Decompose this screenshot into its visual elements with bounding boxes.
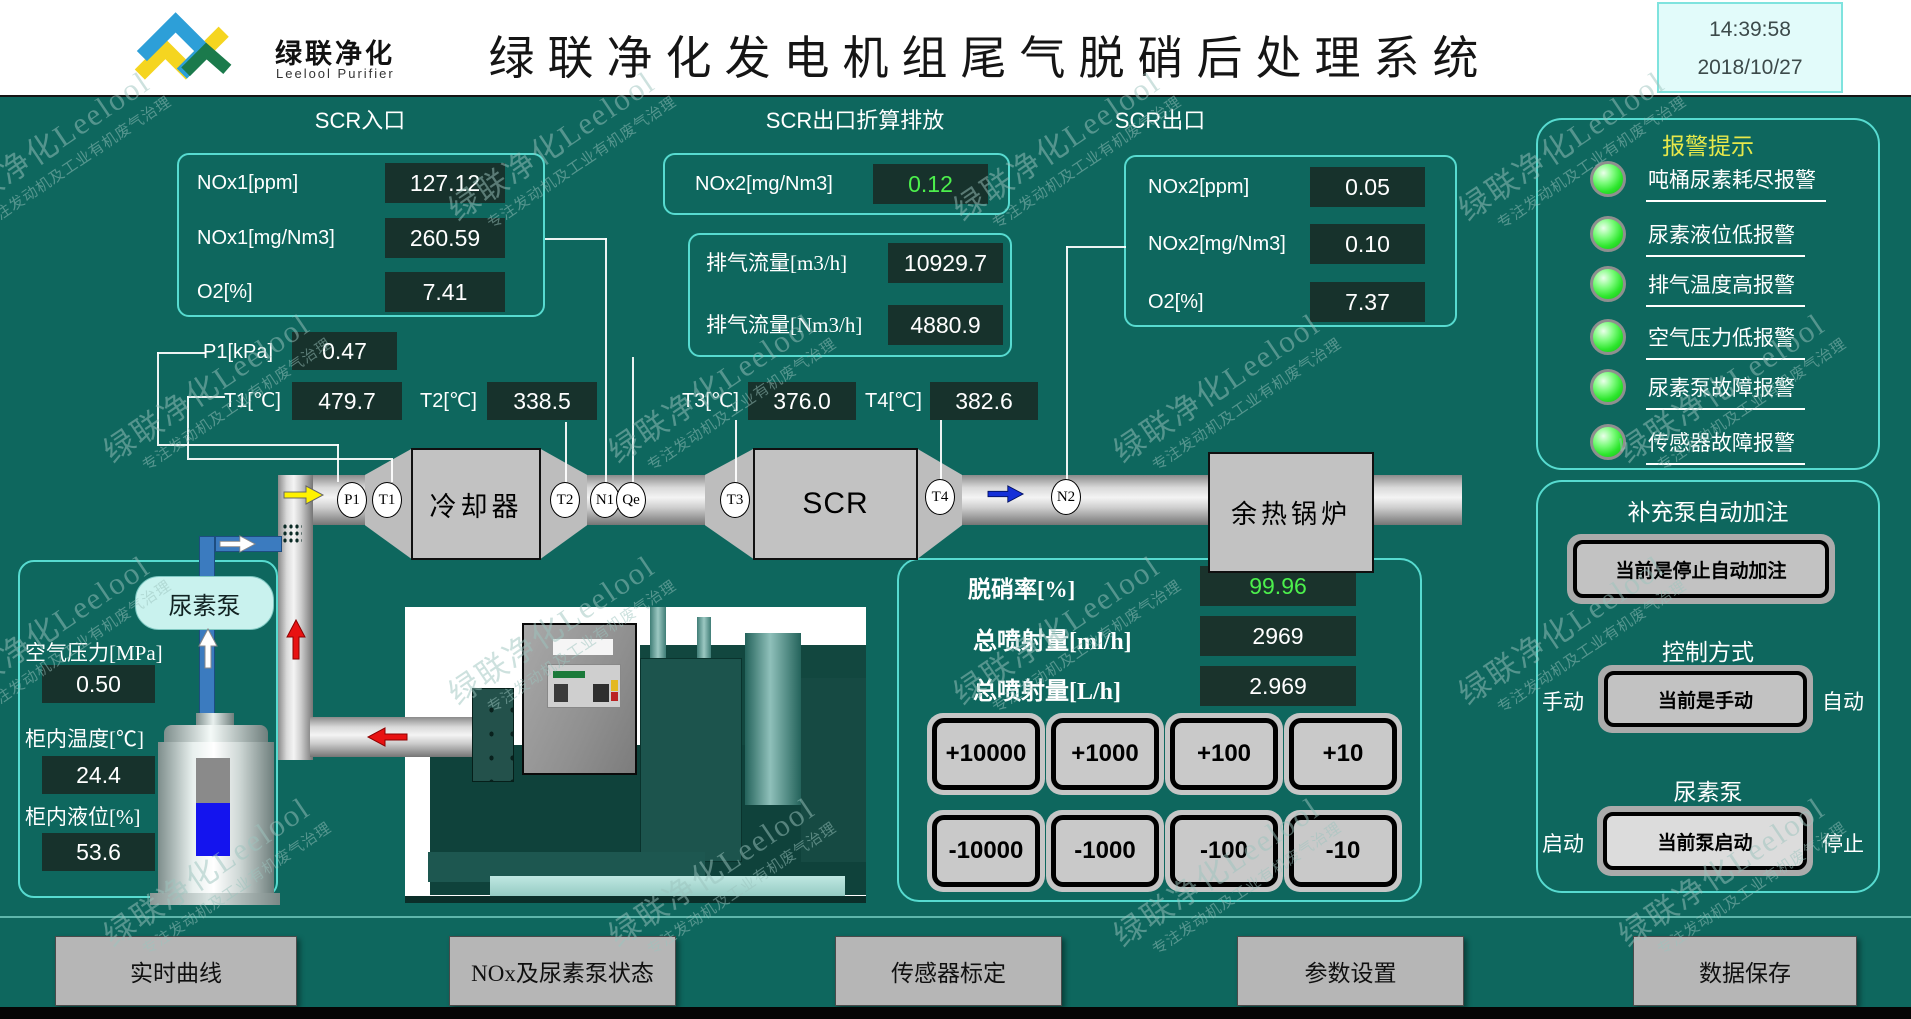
sensor-tag-t4: T4 — [925, 479, 955, 515]
t3-label: T3[℃] — [682, 382, 739, 420]
air-pressure-label: 空气压力[MPa] — [25, 637, 163, 667]
nav-nox-pump-status-button[interactable]: NOx及尿素泵状态 — [449, 936, 676, 1006]
flow-arrow-yellow-icon — [284, 485, 324, 505]
urea-pump-tag-label: 尿素泵 — [169, 586, 241, 621]
urea-tank — [150, 713, 280, 905]
hmi-indicator-yellow — [611, 680, 618, 691]
connector-line — [1066, 246, 1126, 248]
flow-row-value: 10929.7 — [888, 243, 1003, 283]
t2-label: T2[℃] — [420, 382, 477, 420]
t1-value: 479.7 — [292, 382, 402, 420]
scr-outlet-converted-title: SCR出口折算排放 — [730, 103, 980, 135]
logo-text-en: Leelool Purifier — [276, 66, 395, 81]
hmi-green-bar — [553, 671, 585, 678]
increase-1000-button[interactable]: +1000 — [1046, 713, 1164, 795]
alarm-panel-title: 报警提示 — [1608, 127, 1808, 161]
genset-cylinder — [745, 633, 801, 805]
decrease-1000-button[interactable]: -1000 — [1046, 810, 1164, 892]
t2-value: 338.5 — [487, 382, 597, 420]
boiler-label: 余热锅炉 — [1231, 494, 1351, 531]
scr-inlet-row-value: 127.12 — [385, 163, 505, 203]
scr-outlet-title: SCR出口 — [1060, 103, 1260, 135]
sensor-tag-t1: T1 — [372, 482, 402, 518]
connector-line — [157, 352, 205, 354]
nav-data-save-button[interactable]: 数据保存 — [1633, 936, 1857, 1006]
decrease-10-button[interactable]: -10 — [1284, 810, 1402, 892]
exhaust-left-arrow-icon — [366, 727, 408, 747]
alarm-label: 排气温度高报警 — [1646, 269, 1805, 307]
cabinet-level-value: 53.6 — [42, 833, 155, 871]
connector-line — [735, 420, 737, 482]
connector-line — [605, 238, 607, 482]
cabinet-hmi-panel — [547, 664, 621, 708]
genset-pillar — [650, 607, 666, 660]
hmi-indicator-red — [611, 692, 618, 701]
decrease-10000-button[interactable]: -10000 — [927, 810, 1045, 892]
nav-sensor-calibration-button[interactable]: 传感器标定 — [835, 936, 1062, 1006]
scr-unit: SCR — [753, 448, 918, 560]
clock-time: 14:39:58 — [1659, 18, 1841, 42]
connector-line — [545, 238, 607, 240]
tank-base — [150, 893, 280, 905]
cooler-label: 冷却器 — [430, 485, 523, 524]
genset-engine-block — [640, 658, 742, 862]
cabinet-temp-value: 24.4 — [42, 756, 155, 794]
injection-l-value: 2.969 — [1200, 666, 1356, 706]
pump-start-label: 启动 — [1542, 828, 1584, 858]
p1-value: 0.47 — [292, 332, 397, 370]
urea-flow-arrow-up-icon — [198, 628, 218, 668]
company-logo-icon — [112, 6, 272, 92]
scr-label: SCR — [802, 487, 868, 521]
boiler-unit: 余热锅炉 — [1208, 452, 1374, 573]
nav-divider — [0, 916, 1911, 918]
cabinet-temp-label: 柜内温度[℃] — [25, 723, 144, 753]
scr-outlet-row-label: NOx2[mg/Nm3] — [1148, 224, 1286, 264]
connector-line — [940, 420, 942, 482]
scr-outlet-row-value: 0.05 — [1310, 167, 1425, 207]
increase-10-button[interactable]: +10 — [1284, 713, 1402, 795]
main-area: SCR入口 NOx1[ppm] 127.12 NOx1[mg/Nm3] 260.… — [0, 97, 1911, 1019]
p1-label: P1[kPa] — [203, 332, 273, 372]
cooler-unit: 冷却器 — [411, 448, 541, 560]
connector-line — [187, 396, 189, 458]
scr-inlet-row-value: 260.59 — [385, 218, 505, 258]
sensor-tag-qe: Qe — [616, 482, 646, 518]
bottom-strip — [0, 1007, 1911, 1019]
flow-row-label: 排气流量[Nm3/h] — [706, 305, 862, 345]
sensor-tag-p1: P1 — [337, 482, 367, 518]
air-pressure-value: 0.50 — [42, 665, 155, 703]
mode-manual-label: 手动 — [1542, 686, 1584, 716]
sensor-tag-n2: N2 — [1051, 479, 1081, 515]
cabinet-nameplate — [553, 639, 613, 655]
alarm-label: 空气压力低报警 — [1646, 322, 1805, 360]
genset-engine-block — [801, 678, 866, 862]
connector-line — [187, 458, 391, 460]
t3-value: 376.0 — [748, 382, 856, 420]
connector-line — [565, 422, 567, 482]
flow-row-label: 排气流量[m3/h] — [706, 243, 847, 283]
scr-outlet-row-value: 0.10 — [1310, 224, 1425, 264]
denox-rate-label: 脱硝率[%] — [968, 570, 1075, 604]
sensor-tag-t3: T3 — [720, 482, 750, 518]
urea-flow-arrow-right-icon — [220, 535, 256, 553]
connector-line — [337, 444, 339, 482]
pump-section-title: 尿素泵 — [1608, 773, 1808, 807]
hmi-root: 绿联净化 Leelool Purifier 绿联净化发电机组尾气脱硝后处理系统 … — [0, 0, 1911, 1019]
genset-control-cabinet — [522, 623, 637, 775]
pump-stop-label: 停止 — [1822, 828, 1864, 858]
t4-label: T4[℃] — [865, 382, 922, 420]
connector-line — [187, 396, 225, 398]
scr-outlet-row-value: 7.37 — [1310, 282, 1425, 322]
injection-ml-label: 总喷射量[ml/h] — [973, 621, 1132, 656]
urea-line-vertical-upper — [199, 536, 215, 578]
injection-l-label: 总喷射量[L/h] — [973, 671, 1121, 706]
connector-line — [157, 444, 339, 446]
alarm-label: 吨桶尿素耗尽报警 — [1646, 164, 1826, 202]
scr-inlet-row-label: NOx1[ppm] — [197, 163, 298, 203]
nox2-converted-value: 0.12 — [873, 164, 988, 204]
tank-gauge-level — [196, 803, 230, 856]
urea-pump-tag: 尿素泵 — [135, 576, 274, 630]
riser-pipe — [278, 475, 313, 760]
alarm-lamp-sensor-fault — [1590, 424, 1626, 460]
hmi-button — [554, 684, 568, 702]
connector-line — [157, 352, 159, 444]
sensor-tag-t2: T2 — [550, 482, 580, 518]
alarm-lamp-exhaust-temp-high — [1590, 266, 1626, 302]
mode-title: 控制方式 — [1608, 633, 1808, 667]
mode-auto-label: 自动 — [1822, 686, 1864, 716]
clock-panel: 14:39:58 2018/10/27 — [1657, 2, 1843, 93]
injection-ml-value: 2969 — [1200, 616, 1356, 656]
connector-line — [1066, 246, 1068, 482]
scr-outlet-row-label: O2[%] — [1148, 282, 1204, 322]
alarm-lamp-urea-low — [1590, 216, 1626, 252]
connector-line — [632, 357, 634, 482]
clock-date: 2018/10/27 — [1659, 56, 1841, 80]
alarm-lamp-pump-fault — [1590, 369, 1626, 405]
increase-100-button[interactable]: +100 — [1165, 713, 1283, 795]
tank-cap — [164, 725, 268, 743]
refill-status-button[interactable]: 当前是停止自动加注 — [1567, 534, 1835, 604]
decrease-100-button[interactable]: -100 — [1165, 810, 1283, 892]
alarm-label: 尿素液位低报警 — [1646, 219, 1805, 257]
scr-inlet-row-label: NOx1[mg/Nm3] — [197, 218, 335, 258]
increase-10000-button[interactable]: +10000 — [927, 713, 1045, 795]
header: 绿联净化 Leelool Purifier 绿联净化发电机组尾气脱硝后处理系统 … — [0, 0, 1911, 97]
tank-gauge-empty — [196, 758, 230, 803]
alarm-lamp-urea-empty — [1590, 161, 1626, 197]
scr-inlet-title: SCR入口 — [260, 103, 460, 135]
scr-outlet-row-label: NOx2[ppm] — [1148, 167, 1249, 207]
nox2-converted-label: NOx2[mg/Nm3] — [695, 164, 833, 204]
urea-injector-nozzle — [282, 523, 302, 544]
connector-line — [391, 458, 393, 482]
scr-inlet-row-value: 7.41 — [385, 272, 505, 312]
page-title: 绿联净化发电机组尾气脱硝后处理系统 — [420, 22, 1560, 88]
genset-floor — [405, 896, 866, 903]
nav-parameter-settings-button[interactable]: 参数设置 — [1237, 936, 1464, 1006]
scr-inlet-row-label: O2[%] — [197, 272, 253, 312]
mode-status-button[interactable]: 当前是手动 — [1598, 665, 1813, 733]
refill-title: 补充泵自动加注 — [1608, 493, 1808, 527]
t1-label: T1[℃] — [224, 382, 281, 420]
flow-arrow-blue-icon — [986, 485, 1026, 503]
alarm-label: 传感器故障报警 — [1646, 427, 1805, 465]
cabinet-level-label: 柜内液位[%] — [25, 801, 140, 831]
alarm-lamp-air-pressure-low — [1590, 319, 1626, 355]
nav-realtime-curve-button[interactable]: 实时曲线 — [55, 936, 297, 1006]
exhaust-flange — [472, 688, 514, 782]
t4-value: 382.6 — [930, 382, 1038, 420]
genset-pillar — [697, 617, 711, 660]
hmi-button — [593, 684, 609, 702]
pump-status-button[interactable]: 当前泵启动 — [1597, 806, 1813, 876]
flow-row-value: 4880.9 — [888, 305, 1003, 345]
exhaust-up-arrow-icon — [286, 619, 306, 659]
alarm-label: 尿素泵故障报警 — [1646, 372, 1805, 410]
